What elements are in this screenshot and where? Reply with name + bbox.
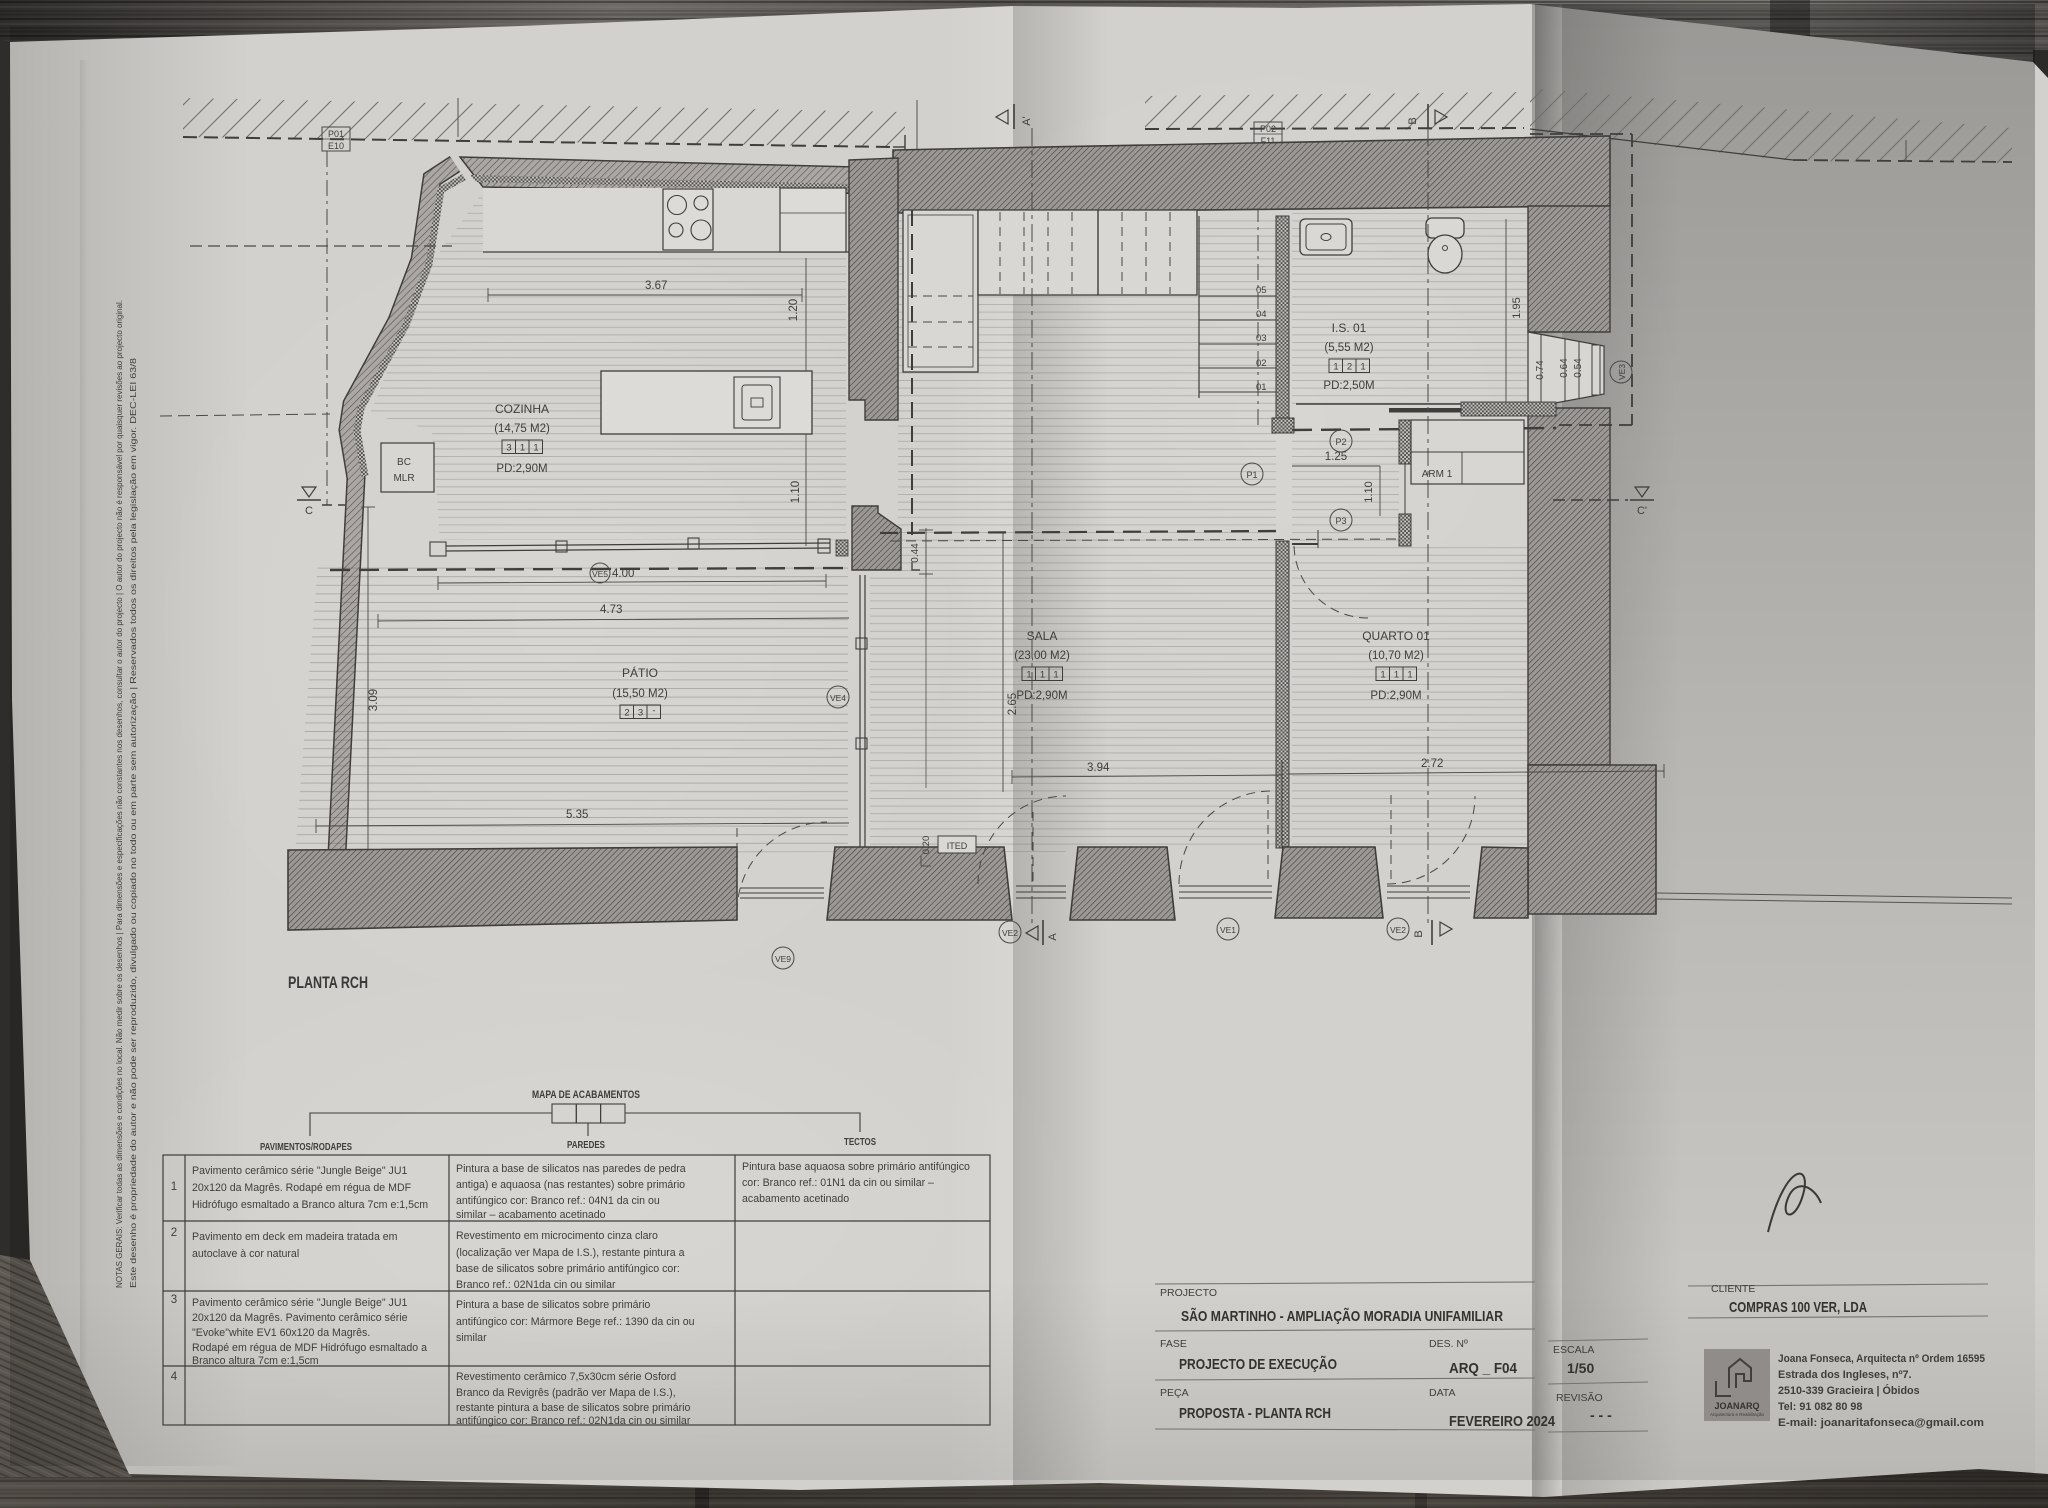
svg-text:similar: similar xyxy=(456,1332,487,1344)
svg-text:3: 3 xyxy=(171,1294,177,1306)
svg-text:cor: Branco ref.: 01N1 da cin: cor: Branco ref.: 01N1 da cin ou similar… xyxy=(742,1177,934,1189)
svg-text:Pavimento cerâmico série "Jung: Pavimento cerâmico série "Jungle Beige" … xyxy=(192,1297,407,1309)
svg-text:QUARTO 01: QUARTO 01 xyxy=(1362,629,1430,643)
svg-text:VE5: VE5 xyxy=(592,569,608,579)
svg-text:Pintura a base de silicatos na: Pintura a base de silicatos nas paredes … xyxy=(456,1163,686,1175)
svg-text:1/50: 1/50 xyxy=(1567,1360,1594,1376)
svg-text:Arquitectura e Reabilitação: Arquitectura e Reabilitação xyxy=(1710,1412,1765,1417)
svg-text:I.S. 01: I.S. 01 xyxy=(1332,321,1367,335)
svg-text:base de silicatos sobre primár: base de silicatos sobre primário antifún… xyxy=(456,1263,680,1275)
svg-text:Hidrófugo esmaltado a Branco a: Hidrófugo esmaltado a Branco altura 7cm … xyxy=(192,1199,428,1211)
svg-text:COMPRAS 100 VER, LDA: COMPRAS 100 VER, LDA xyxy=(1729,1299,1867,1316)
svg-text:3.67: 3.67 xyxy=(645,280,667,292)
svg-text:JOANARQ: JOANARQ xyxy=(1714,1401,1759,1411)
svg-text:(14,75 M2): (14,75 M2) xyxy=(494,423,550,435)
svg-text:1: 1 xyxy=(1394,670,1399,681)
svg-text:1.10: 1.10 xyxy=(790,481,802,503)
svg-text:1.20: 1.20 xyxy=(788,299,800,321)
svg-text:SÃO MARTINHO - AMPLIAÇÃO MO: SÃO MARTINHO - AMPLIAÇÃO MORADIA UNIFAMI… xyxy=(1181,1307,1503,1325)
svg-text:B: B xyxy=(1407,117,1419,124)
svg-text:A: A xyxy=(1047,933,1059,941)
svg-text:PÁTIO: PÁTIO xyxy=(622,665,658,680)
svg-text:VE1: VE1 xyxy=(1220,925,1236,935)
svg-text:PROPOSTA - PLANTA RCH: PROPOSTA - PLANTA RCH xyxy=(1179,1405,1331,1422)
svg-text:P3: P3 xyxy=(1335,516,1346,526)
svg-text:1: 1 xyxy=(533,443,538,454)
svg-text:1: 1 xyxy=(1333,362,1338,373)
svg-text:SALA: SALA xyxy=(1027,629,1058,643)
svg-text:REVISÃO: REVISÃO xyxy=(1556,1391,1603,1404)
svg-text:A': A' xyxy=(1021,116,1033,125)
svg-text:0.20: 0.20 xyxy=(921,836,932,855)
svg-text:4: 4 xyxy=(171,1371,178,1383)
svg-text:1: 1 xyxy=(520,443,525,454)
svg-text:1: 1 xyxy=(1026,670,1031,681)
svg-text:restante pintura a base de sil: restante pintura a base de silicatos sob… xyxy=(456,1402,690,1414)
svg-text:Branco da Revigrês (padrão ver: Branco da Revigrês (padrão ver Mapa de I… xyxy=(456,1387,676,1399)
svg-text:3.09: 3.09 xyxy=(368,689,380,711)
svg-text:MAPA DE ACABAMENTOS: MAPA DE ACABAMENTOS xyxy=(532,1089,640,1101)
svg-text:E10: E10 xyxy=(328,141,344,151)
svg-text:autoclave à cor natural: autoclave à cor natural xyxy=(192,1248,299,1260)
svg-text:FEVEREIRO 2024: FEVEREIRO 2024 xyxy=(1449,1413,1556,1430)
svg-text:DES. Nº: DES. Nº xyxy=(1429,1338,1468,1350)
svg-text:PD:2,90M: PD:2,90M xyxy=(496,463,547,475)
svg-text:Revestimento cerâmico 7,5x30cm: Revestimento cerâmico 7,5x30cm série Osf… xyxy=(456,1371,676,1383)
svg-text:1.25: 1.25 xyxy=(1325,451,1347,463)
svg-text:0.74: 0.74 xyxy=(1535,360,1546,380)
svg-text:FASE: FASE xyxy=(1160,1338,1187,1350)
svg-text:PEÇA: PEÇA xyxy=(1160,1387,1189,1399)
svg-text:antifúngico cor: Branco ref.:: antifúngico cor: Branco ref.: 02N1da cin… xyxy=(456,1415,691,1427)
svg-text:Pintura base aquaosa sobre pri: Pintura base aquaosa sobre primário anti… xyxy=(742,1161,970,1173)
svg-text:Branco altura 7cm e:1,5cm: Branco altura 7cm e:1,5cm xyxy=(192,1355,319,1367)
svg-text:0.54: 0.54 xyxy=(1573,358,1584,378)
svg-text:1: 1 xyxy=(1053,670,1058,681)
svg-text:01: 01 xyxy=(1256,382,1267,393)
svg-text:2.72: 2.72 xyxy=(1421,758,1443,770)
svg-text:2: 2 xyxy=(624,708,629,719)
svg-text:antifúngico cor: Branco ref.:: antifúngico cor: Branco ref.: 04N1 da ci… xyxy=(456,1195,660,1207)
svg-text:"Evoke"white EV1 60x120 da Mag: "Evoke"white EV1 60x120 da Magrês. xyxy=(192,1327,370,1339)
svg-text:0.64: 0.64 xyxy=(1559,358,1570,378)
svg-text:CLIENTE: CLIENTE xyxy=(1711,1283,1755,1295)
svg-text:(localização ver Mapa de I.S.): (localização ver Mapa de I.S.), restante… xyxy=(456,1247,685,1259)
svg-text:P01: P01 xyxy=(328,129,344,139)
svg-text:3: 3 xyxy=(638,708,643,719)
svg-text:-: - xyxy=(652,706,655,717)
svg-text:2510-339 Gracieira | Óbidos: 2510-339 Gracieira | Óbidos xyxy=(1778,1384,1920,1397)
svg-text:20x120 da Magrês. Rodapé em ré: 20x120 da Magrês. Rodapé em régua de MDF xyxy=(192,1182,412,1194)
svg-text:VE2: VE2 xyxy=(1390,925,1406,935)
svg-text:B: B xyxy=(1413,930,1425,937)
svg-text:1.10: 1.10 xyxy=(1363,481,1375,502)
svg-text:1: 1 xyxy=(1040,670,1045,681)
svg-text:Pavimento em deck em madeira t: Pavimento em deck em madeira tratada em xyxy=(192,1231,398,1243)
svg-text:BC: BC xyxy=(397,457,411,468)
svg-text:- - -: - - - xyxy=(1590,1407,1612,1423)
svg-text:1: 1 xyxy=(1380,670,1385,681)
svg-text:2: 2 xyxy=(1347,362,1352,373)
svg-text:antifúngico cor: Mármore Bege: antifúngico cor: Mármore Bege ref.: 1390… xyxy=(456,1316,695,1328)
svg-text:Joana Fonseca, Arquitecta nº O: Joana Fonseca, Arquitecta nº Ordem 16595 xyxy=(1778,1353,1985,1365)
svg-text:(5,55 M2): (5,55 M2) xyxy=(1324,342,1373,354)
svg-text:PAVIMENTOS/RODAPES: PAVIMENTOS/RODAPES xyxy=(260,1142,352,1153)
svg-text:05: 05 xyxy=(1256,285,1267,296)
svg-text:(23,00 M2): (23,00 M2) xyxy=(1014,650,1070,662)
svg-text:Este desenho é propriedade do: Este desenho é propriedade do autor e nã… xyxy=(128,358,138,1288)
svg-text:ITED: ITED xyxy=(947,841,968,851)
svg-text:VE2: VE2 xyxy=(1002,928,1018,938)
svg-text:C': C' xyxy=(1637,505,1647,517)
svg-text:02: 02 xyxy=(1256,358,1267,369)
svg-text:4.73: 4.73 xyxy=(600,604,622,616)
svg-text:PLANTA RCH: PLANTA RCH xyxy=(288,974,368,992)
svg-text:3.94: 3.94 xyxy=(1087,762,1110,774)
svg-text:Revestimento em microcimento c: Revestimento em microcimento cinza claro xyxy=(456,1230,658,1242)
svg-text:antiga) e aquaosa (nas restant: antiga) e aquaosa (nas restantes) sobre … xyxy=(456,1179,685,1191)
svg-text:MLR: MLR xyxy=(393,473,414,484)
svg-text:acabamento acetinado: acabamento acetinado xyxy=(742,1193,849,1205)
svg-text:TECTOS: TECTOS xyxy=(844,1137,876,1148)
svg-text:VE4: VE4 xyxy=(830,693,846,703)
svg-text:5.35: 5.35 xyxy=(566,809,588,821)
svg-text:20x120 da Magrês. Pavimento ce: 20x120 da Magrês. Pavimento cerâmico sér… xyxy=(192,1312,408,1324)
svg-text:Pintura a base de silicatos so: Pintura a base de silicatos sobre primár… xyxy=(456,1299,650,1311)
svg-text:C: C xyxy=(305,505,313,517)
svg-text:Rodapé em régua de MDF Hidrófu: Rodapé em régua de MDF Hidrófugo esmalta… xyxy=(192,1342,427,1354)
svg-text:(10,70 M2): (10,70 M2) xyxy=(1368,650,1424,662)
svg-text:ESCALA: ESCALA xyxy=(1553,1344,1594,1356)
svg-text:1: 1 xyxy=(1360,362,1365,373)
svg-text:04: 04 xyxy=(1256,309,1267,320)
svg-text:VE3: VE3 xyxy=(1617,364,1627,380)
svg-text:PROJECTO DE EXECUÇÃO: PROJECTO DE EXECUÇÃO xyxy=(1179,1355,1337,1373)
svg-text:1: 1 xyxy=(171,1181,177,1193)
svg-text:PD:2,50M: PD:2,50M xyxy=(1323,380,1374,392)
svg-text:COZINHA: COZINHA xyxy=(495,402,549,416)
svg-text:ARQ _ F04: ARQ _ F04 xyxy=(1449,1360,1518,1377)
svg-text:2: 2 xyxy=(171,1227,177,1239)
svg-text:P2: P2 xyxy=(1335,437,1346,447)
svg-text:03: 03 xyxy=(1256,333,1267,344)
svg-text:ARM 1: ARM 1 xyxy=(1422,469,1453,480)
svg-text:NOTAS GERAIS: Verificar todas: NOTAS GERAIS: Verificar todas as dimensõ… xyxy=(114,300,124,1288)
svg-text:VE9: VE9 xyxy=(775,954,791,964)
svg-text:Branco ref.: 02N1da cin ou sim: Branco ref.: 02N1da cin ou similar xyxy=(456,1279,616,1291)
svg-text:Tel: 91 082 80 98: Tel: 91 082 80 98 xyxy=(1778,1401,1862,1413)
svg-text:PAREDES: PAREDES xyxy=(567,1140,605,1151)
svg-text:(15,50 M2): (15,50 M2) xyxy=(612,688,668,700)
svg-text:3: 3 xyxy=(506,443,511,454)
svg-text:1: 1 xyxy=(1407,670,1412,681)
svg-text:P02: P02 xyxy=(1260,124,1276,134)
svg-text:E-mail: joanaritafonseca@gmail: E-mail: joanaritafonseca@gmail.com xyxy=(1778,1417,1984,1429)
svg-text:DATA: DATA xyxy=(1429,1387,1455,1399)
svg-text:PD:2,90M: PD:2,90M xyxy=(1016,690,1067,702)
svg-text:similar – acabamento acetinado: similar – acabamento acetinado xyxy=(456,1209,606,1221)
svg-text:4.00: 4.00 xyxy=(612,568,634,580)
svg-text:Pavimento cerâmico série "Jung: Pavimento cerâmico série "Jungle Beige" … xyxy=(192,1165,407,1177)
svg-text:PD:2,90M: PD:2,90M xyxy=(1370,690,1421,702)
svg-text:PROJECTO: PROJECTO xyxy=(1160,1287,1217,1299)
svg-text:Estrada dos Ingleses, nº7.: Estrada dos Ingleses, nº7. xyxy=(1778,1369,1912,1381)
svg-text:P1: P1 xyxy=(1246,470,1257,480)
